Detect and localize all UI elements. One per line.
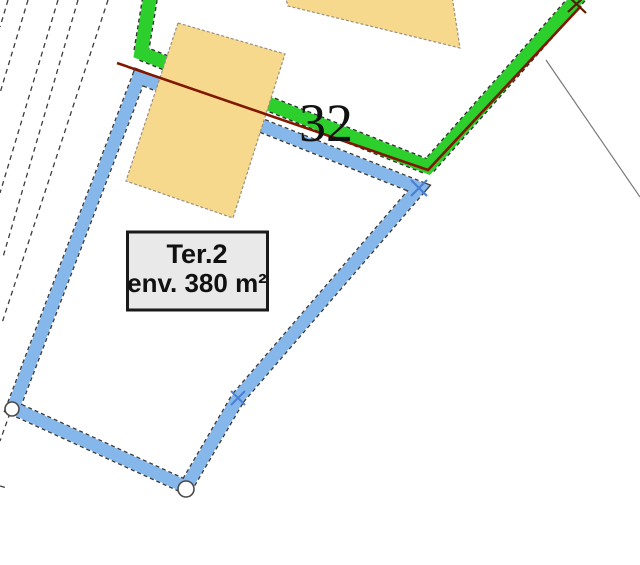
corner-circle-marker-bottom <box>178 481 194 497</box>
parcel-number-label: 32 <box>299 93 353 153</box>
cadastral-map: 32 Ter.2 env. 380 m² <box>0 0 640 565</box>
cadastral-map-canvas: 32 Ter.2 env. 380 m² <box>0 0 640 565</box>
area-label-surface: env. 380 m² <box>127 268 267 298</box>
building-footprint-top <box>285 0 460 48</box>
corner-circle-marker-left <box>5 402 19 416</box>
thin-boundary-line <box>546 60 640 197</box>
area-label-name: Ter.2 <box>166 239 227 269</box>
